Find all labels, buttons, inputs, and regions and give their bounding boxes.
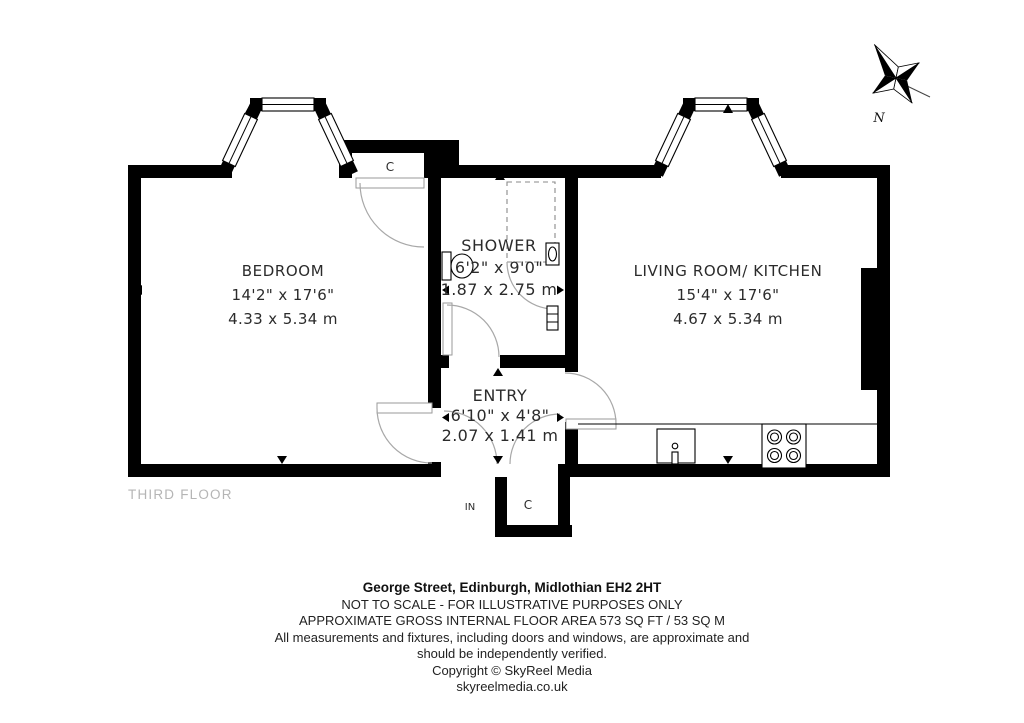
footer-copyright: Copyright © SkyReel Media xyxy=(432,663,593,678)
entry-dim-imperial: 6'10" x 4'8" xyxy=(451,406,550,425)
floorplan-canvas: N BEDROOM 14'2" x 17'6" 4.33 x 5.34 m SH… xyxy=(0,0,1024,723)
shower-name: SHOWER xyxy=(461,236,536,255)
dimension-arrow-down-icon xyxy=(493,456,503,464)
dimension-arrow-down-icon xyxy=(723,456,733,464)
footer-address: George Street, Edinburgh, Midlothian EH2… xyxy=(363,580,662,595)
room-labels: BEDROOM 14'2" x 17'6" 4.33 x 5.34 m SHOW… xyxy=(228,160,822,513)
dimension-arrow-right-icon xyxy=(557,286,564,295)
shower-dim-metric: 1.87 x 2.75 m xyxy=(441,280,558,299)
bedroom-name: BEDROOM xyxy=(242,262,325,280)
footer-scale-note: NOT TO SCALE - FOR ILLUSTRATIVE PURPOSES… xyxy=(341,597,683,612)
chimney-breast xyxy=(861,268,877,390)
window-unit xyxy=(695,98,747,111)
footer-area-note: APPROXIMATE GROSS INTERNAL FLOOR AREA 57… xyxy=(299,613,725,628)
living-bay-window xyxy=(656,98,787,174)
dimension-arrow-left-icon xyxy=(442,413,449,422)
bedroom-door-swing xyxy=(377,403,432,463)
footer-disclaimer-2: should be independently verified. xyxy=(417,646,607,661)
sink-icon xyxy=(657,429,695,464)
bedroom-bay-window xyxy=(223,98,354,174)
bedroom-dim-metric: 4.33 x 5.34 m xyxy=(228,310,338,328)
closet-door-swing xyxy=(356,178,424,247)
shower-fixtures xyxy=(442,182,559,330)
shower-door-swing xyxy=(443,303,499,357)
bedroom-dim-imperial: 14'2" x 17'6" xyxy=(232,286,335,304)
dimension-arrow-up-icon xyxy=(493,368,503,376)
living-door-swing xyxy=(565,373,616,429)
floorplan-svg: N BEDROOM 14'2" x 17'6" 4.33 x 5.34 m SH… xyxy=(0,0,1024,723)
compass-north-label: N xyxy=(872,111,885,126)
hob-icon xyxy=(762,424,806,468)
window-unit xyxy=(656,113,691,166)
footer-title-block: George Street, Edinburgh, Midlothian EH2… xyxy=(275,580,750,694)
closet-top-label: C xyxy=(386,160,394,174)
window-unit xyxy=(262,98,314,111)
entry-dim-metric: 2.07 x 1.41 m xyxy=(442,426,559,445)
basin-icon xyxy=(546,243,559,265)
dimension-arrow-right-icon xyxy=(557,413,564,422)
closet-vestibule-label: C xyxy=(524,498,532,512)
floor-level-label: THIRD FLOOR xyxy=(128,487,233,502)
footer-website: skyreelmedia.co.uk xyxy=(456,679,568,694)
living-kitchen-dim-metric: 4.67 x 5.34 m xyxy=(673,310,783,328)
dimension-arrow-down-icon xyxy=(277,456,287,464)
entry-name: ENTRY xyxy=(473,386,528,405)
walls xyxy=(128,140,890,537)
entrance-in-label: IN xyxy=(465,502,475,513)
window-unit xyxy=(223,113,258,166)
window-unit xyxy=(752,113,787,166)
compass-icon: N xyxy=(851,29,936,126)
shower-dim-imperial: 6'2" x 9'0" xyxy=(455,258,543,277)
living-kitchen-name: LIVING ROOM/ KITCHEN xyxy=(634,262,823,280)
living-kitchen-dim-imperial: 15'4" x 17'6" xyxy=(677,286,780,304)
footer-disclaimer-1: All measurements and fixtures, including… xyxy=(275,630,750,645)
radiator-icon xyxy=(547,306,558,330)
